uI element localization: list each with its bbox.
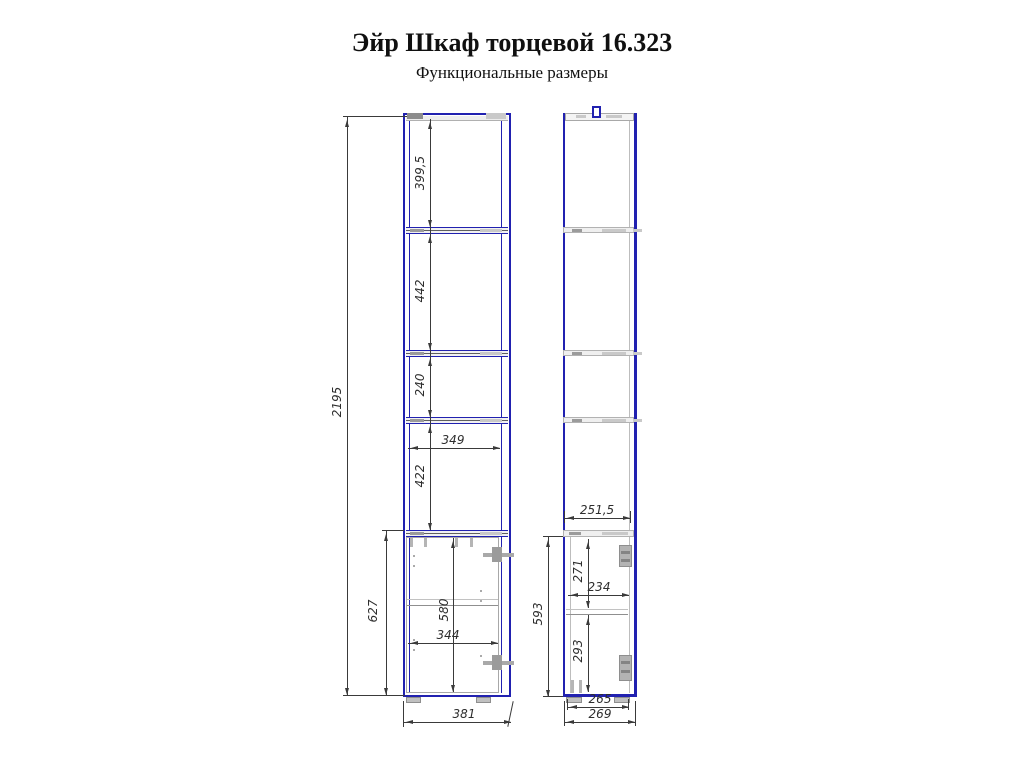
dowel-mark: [602, 419, 626, 422]
arrow-icon: [564, 720, 574, 724]
dowel-mark: [569, 532, 581, 535]
shelf-band-side: [563, 227, 634, 233]
arrow-icon: [546, 690, 550, 700]
dim-overall-depth-label: 269: [589, 708, 612, 720]
dim-side-base-height-label: 593: [532, 603, 544, 626]
arrow-icon: [546, 537, 550, 547]
foot: [566, 697, 582, 703]
foot: [476, 697, 491, 703]
dim-compartment-depth-label: 234: [588, 581, 611, 593]
arrow-icon: [428, 233, 432, 243]
hinge-icon: [621, 559, 630, 562]
dowel-mark: [480, 352, 502, 355]
dim-line-lower-compartment: [588, 615, 589, 692]
arrow-icon: [623, 516, 633, 520]
dowel-mark: [410, 532, 424, 535]
hinge-icon: [492, 547, 502, 562]
arrow-icon: [586, 539, 590, 549]
hanger-bracket-icon: [407, 113, 423, 119]
hinge-icon: [621, 670, 630, 673]
dowel-mark: [606, 115, 622, 118]
arrow-icon: [568, 593, 578, 597]
dim-line-side-base-height: [548, 537, 549, 697]
dowel-mark: [602, 229, 626, 232]
shelf-band: [406, 417, 508, 424]
arrow-icon: [428, 423, 432, 433]
arrow-icon: [428, 523, 432, 533]
dim-top-shelf-depth-label: 251,5: [580, 504, 614, 516]
base-top-band-side: [563, 530, 634, 537]
arrow-icon: [493, 446, 503, 450]
shelf-pin-hole: [480, 600, 482, 602]
dowel-mark: [572, 352, 582, 355]
dowel-mark: [602, 532, 628, 535]
dim-line-overall-depth: [564, 722, 635, 723]
dowel-mark: [572, 419, 582, 422]
shelf-pin-hole: [413, 649, 415, 651]
arrow-icon: [622, 593, 632, 597]
dim-line-overall-height: [347, 117, 348, 695]
dim-section1-label: 399,5: [414, 156, 426, 190]
arrow-icon: [451, 685, 455, 695]
shelf-band: [406, 227, 508, 234]
page-subtitle: Функциональные размеры: [0, 63, 1024, 83]
shelf-pin-hole: [480, 655, 482, 657]
shelf-band-side: [563, 417, 634, 423]
side-back-edge: [563, 113, 565, 697]
arrow-icon: [451, 538, 455, 548]
dowel-mark: [602, 352, 626, 355]
arrow-icon: [408, 446, 418, 450]
shelf-pin-hole: [413, 555, 415, 557]
dim-line-base-height: [386, 531, 387, 695]
dim-line-upper-compartment: [588, 539, 589, 608]
drawing-canvas: Эйр Шкаф торцевой 16.323 Функциональные …: [0, 0, 1024, 768]
arrow-icon: [428, 119, 432, 129]
arrow-icon: [428, 220, 432, 230]
dim-inner-depth-label: 265: [589, 693, 612, 705]
front-inner-right-panel: [501, 117, 502, 693]
dowel-mark: [410, 352, 424, 355]
dim-niche-width-label: 349: [442, 434, 465, 446]
inner-shelf-edge: [566, 609, 628, 610]
arrow-icon: [384, 688, 388, 698]
side-front-inner-line: [629, 121, 630, 693]
dim-door-width-label: 344: [437, 629, 460, 641]
dim-section3-label: 240: [414, 374, 426, 397]
dim-line-overall-width: [403, 722, 511, 723]
dim-niche-height-label: 422: [414, 465, 426, 488]
hinge-icon: [621, 551, 630, 554]
arrow-icon: [345, 688, 349, 698]
arrow-icon: [384, 531, 388, 541]
dim-line-door-height: [453, 538, 454, 692]
shelf-band-side: [563, 350, 634, 356]
arrow-icon: [504, 720, 514, 724]
dowel-mark: [633, 419, 642, 422]
dowel-pin: [579, 680, 582, 693]
arrow-icon: [345, 117, 349, 127]
dowel-pin: [410, 538, 413, 547]
arrow-icon: [428, 343, 432, 353]
arrow-icon: [622, 705, 632, 709]
dim-overall-width-label: 381: [453, 708, 476, 720]
inner-shelf-edge: [566, 614, 628, 615]
dim-line-sections: [430, 119, 431, 530]
extension-line: [343, 695, 405, 696]
dowel-mark: [480, 532, 502, 535]
dowel-mark: [572, 229, 582, 232]
wall-bracket-icon: [592, 106, 601, 118]
dowel-mark: [480, 419, 502, 422]
hanger-bracket-icon: [486, 113, 506, 119]
shelf-pin-hole: [480, 590, 482, 592]
dowel-mark: [410, 419, 424, 422]
dim-lower-compartment-label: 293: [572, 640, 584, 663]
dowel-mark: [633, 352, 642, 355]
shelf-pin-hole: [413, 565, 415, 567]
base-top-band: [406, 530, 508, 537]
arrow-icon: [567, 705, 577, 709]
hinge-icon: [619, 655, 632, 681]
side-front-edge: [634, 113, 637, 697]
arrow-icon: [428, 410, 432, 420]
foot: [406, 697, 421, 703]
dim-overall-height-label: 2195: [331, 387, 343, 418]
page-title: Эйр Шкаф торцевой 16.323: [0, 28, 1024, 58]
dim-door-height-label: 580: [438, 599, 450, 622]
dim-upper-compartment-label: 271: [572, 560, 584, 583]
dim-line-niche-width: [408, 448, 500, 449]
dowel-mark: [633, 229, 642, 232]
dowel-mark: [480, 229, 502, 232]
hinge-icon: [621, 661, 630, 664]
dowel-pin: [470, 538, 473, 547]
dowel-mark: [410, 229, 424, 232]
arrow-icon: [428, 356, 432, 366]
arrow-icon: [408, 641, 418, 645]
hinge-icon: [492, 655, 502, 670]
arrow-icon: [564, 516, 574, 520]
arrow-icon: [628, 720, 638, 724]
dowel-pin: [455, 538, 458, 547]
shelf-band: [406, 350, 508, 357]
hinge-icon: [619, 545, 632, 567]
extension-line: [343, 116, 407, 117]
dowel-pin: [571, 680, 574, 693]
dowel-mark: [576, 115, 586, 118]
arrow-icon: [586, 601, 590, 611]
dowel-pin: [424, 538, 427, 547]
dim-base-height-label: 627: [367, 600, 379, 623]
dim-section2-label: 442: [414, 280, 426, 303]
arrow-icon: [491, 641, 501, 645]
arrow-icon: [403, 720, 413, 724]
arrow-icon: [586, 615, 590, 625]
dim-line-door-width: [408, 643, 498, 644]
